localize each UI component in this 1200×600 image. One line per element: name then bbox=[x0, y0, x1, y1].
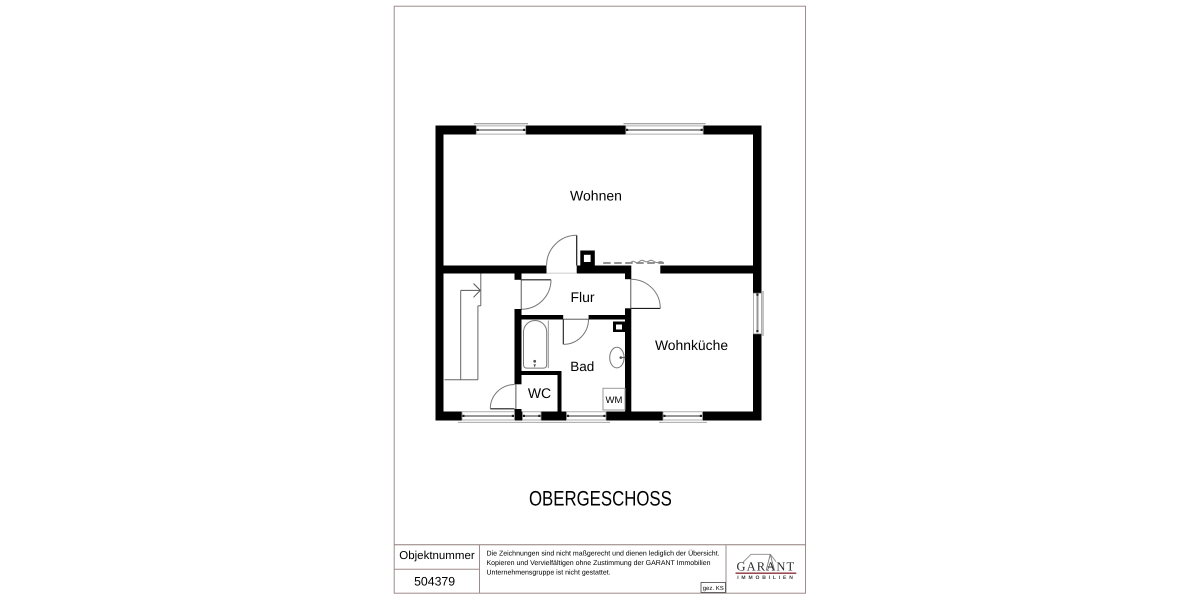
svg-text:Wohnen: Wohnen bbox=[570, 187, 622, 203]
svg-text:Unternehmensgruppe ist nicht g: Unternehmensgruppe ist nicht gestattet. bbox=[487, 568, 611, 576]
svg-text:Objektnummer: Objektnummer bbox=[399, 550, 475, 562]
svg-text:IMMOBILIEN: IMMOBILIEN bbox=[737, 575, 796, 581]
svg-text:WM: WM bbox=[606, 395, 623, 406]
svg-text:gez. KS: gez. KS bbox=[703, 585, 724, 592]
svg-text:GARANT: GARANT bbox=[737, 559, 796, 573]
svg-text:Flur: Flur bbox=[570, 289, 594, 305]
svg-text:Die Zeichnungen sind nicht maß: Die Zeichnungen sind nicht maßgerecht un… bbox=[487, 550, 720, 558]
svg-text:WC: WC bbox=[528, 385, 551, 401]
svg-text:Wohnküche: Wohnküche bbox=[655, 337, 728, 353]
svg-text:OBERGESCHOSS: OBERGESCHOSS bbox=[529, 488, 672, 511]
svg-text:504379: 504379 bbox=[414, 575, 455, 589]
svg-text:Bad: Bad bbox=[570, 359, 594, 374]
svg-text:Kopieren und Vervielfältigen o: Kopieren und Vervielfältigen ohne Zustim… bbox=[487, 559, 711, 567]
